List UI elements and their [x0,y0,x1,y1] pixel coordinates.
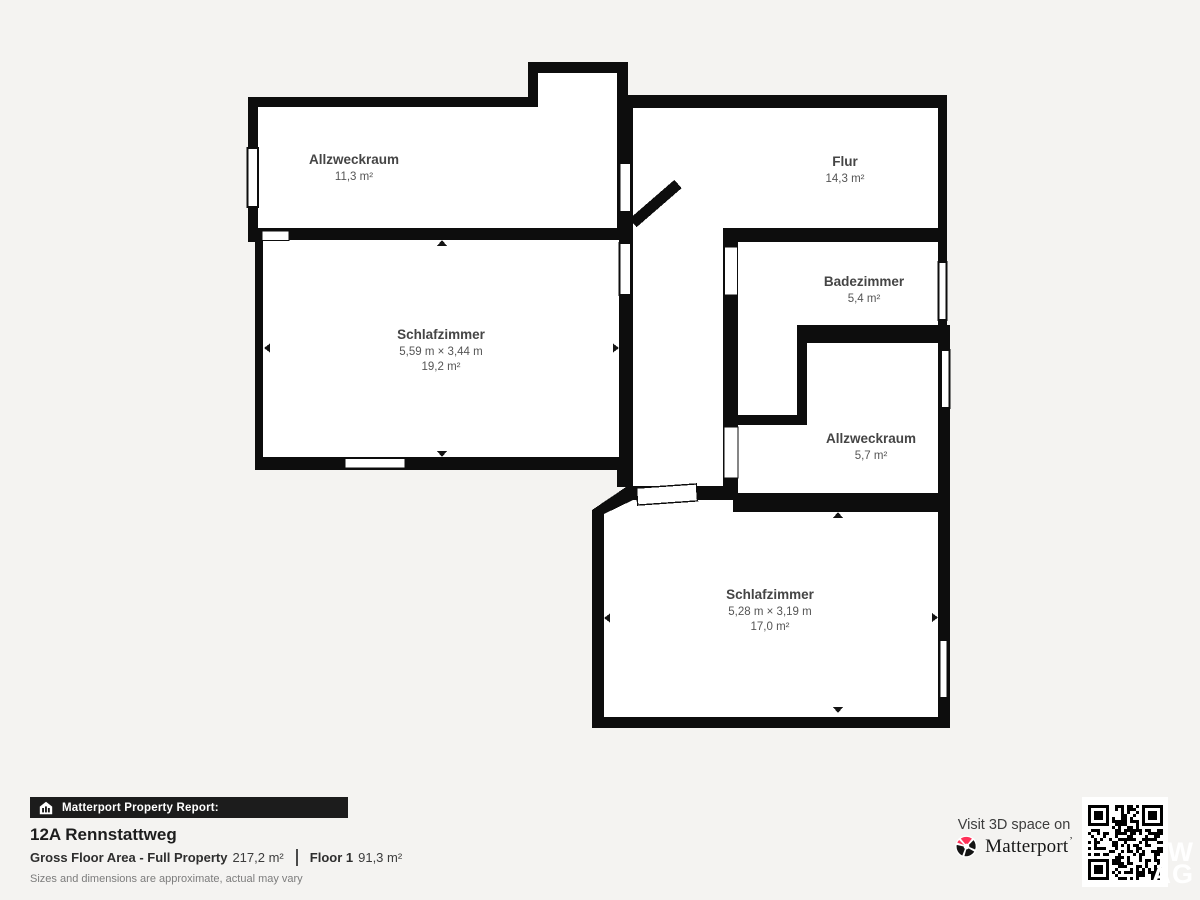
metric-divider [296,849,298,866]
svg-text:14,3 m²: 14,3 m² [826,173,865,185]
svg-text:Allzweckraum: Allzweckraum [309,152,399,167]
door-opening [345,459,405,469]
floorplan: Allzweckraum 11,3 m² Flur 14,3 m² Badezi… [0,0,1200,760]
property-report-page: Allzweckraum 11,3 m² Flur 14,3 m² Badezi… [0,0,1200,900]
svg-text:5,59 m × 3,44 m: 5,59 m × 3,44 m [399,346,482,358]
report-title: Matterport Property Report: [62,802,219,814]
visit-3d-label: Visit 3D space on [950,817,1078,833]
door-opening [637,484,698,505]
svg-text:Schlafzimmer: Schlafzimmer [397,327,486,342]
report-title-bar: Matterport Property Report: [30,797,348,818]
window-marker [941,350,950,408]
window-marker [620,243,632,295]
room-floor-corridor [633,108,723,486]
svg-text:5,7 m²: 5,7 m² [855,450,888,462]
svg-text:5,4 m²: 5,4 m² [848,293,881,305]
svg-text:Flur: Flur [832,154,858,169]
window-marker [248,148,259,207]
svg-text:19,2 m²: 19,2 m² [422,361,461,373]
window-marker [939,262,947,320]
door-opening [262,231,289,241]
window-marker [620,163,632,212]
matterport-wordmark: Matterportʼ [985,836,1073,858]
gross-floor-area-value: 217,2 m² [232,850,283,865]
property-address: 12A Rennstattweg [30,825,177,845]
room-floor-allzweckraum-top [258,73,617,228]
matterport-link[interactable]: Matterportʼ [950,835,1078,858]
svg-text:17,0 m²: 17,0 m² [751,621,790,633]
svg-text:5,28 m × 3,19 m: 5,28 m × 3,19 m [728,606,811,618]
trademark-tick: ʼ [1069,836,1073,847]
door-opening [724,427,738,478]
matterport-logo-icon [955,835,978,858]
svg-text:Badezimmer: Badezimmer [824,274,905,289]
window-marker [940,640,948,698]
gross-floor-area-label: Gross Floor Area - Full Property [30,850,227,865]
building-icon [39,801,53,815]
svg-text:Schlafzimmer: Schlafzimmer [726,587,815,602]
floor-label: Floor 1 [310,850,353,865]
svg-text:11,3 m²: 11,3 m² [335,171,373,183]
disclaimer-text: Sizes and dimensions are approximate, ac… [30,873,303,885]
floor-area-value: 91,3 m² [358,850,402,865]
watermark-logo: W AG [1128,841,1194,886]
door-opening [725,247,738,295]
svg-text:Allzweckraum: Allzweckraum [826,431,916,446]
floor-area-metrics: Gross Floor Area - Full Property 217,2 m… [30,849,402,866]
